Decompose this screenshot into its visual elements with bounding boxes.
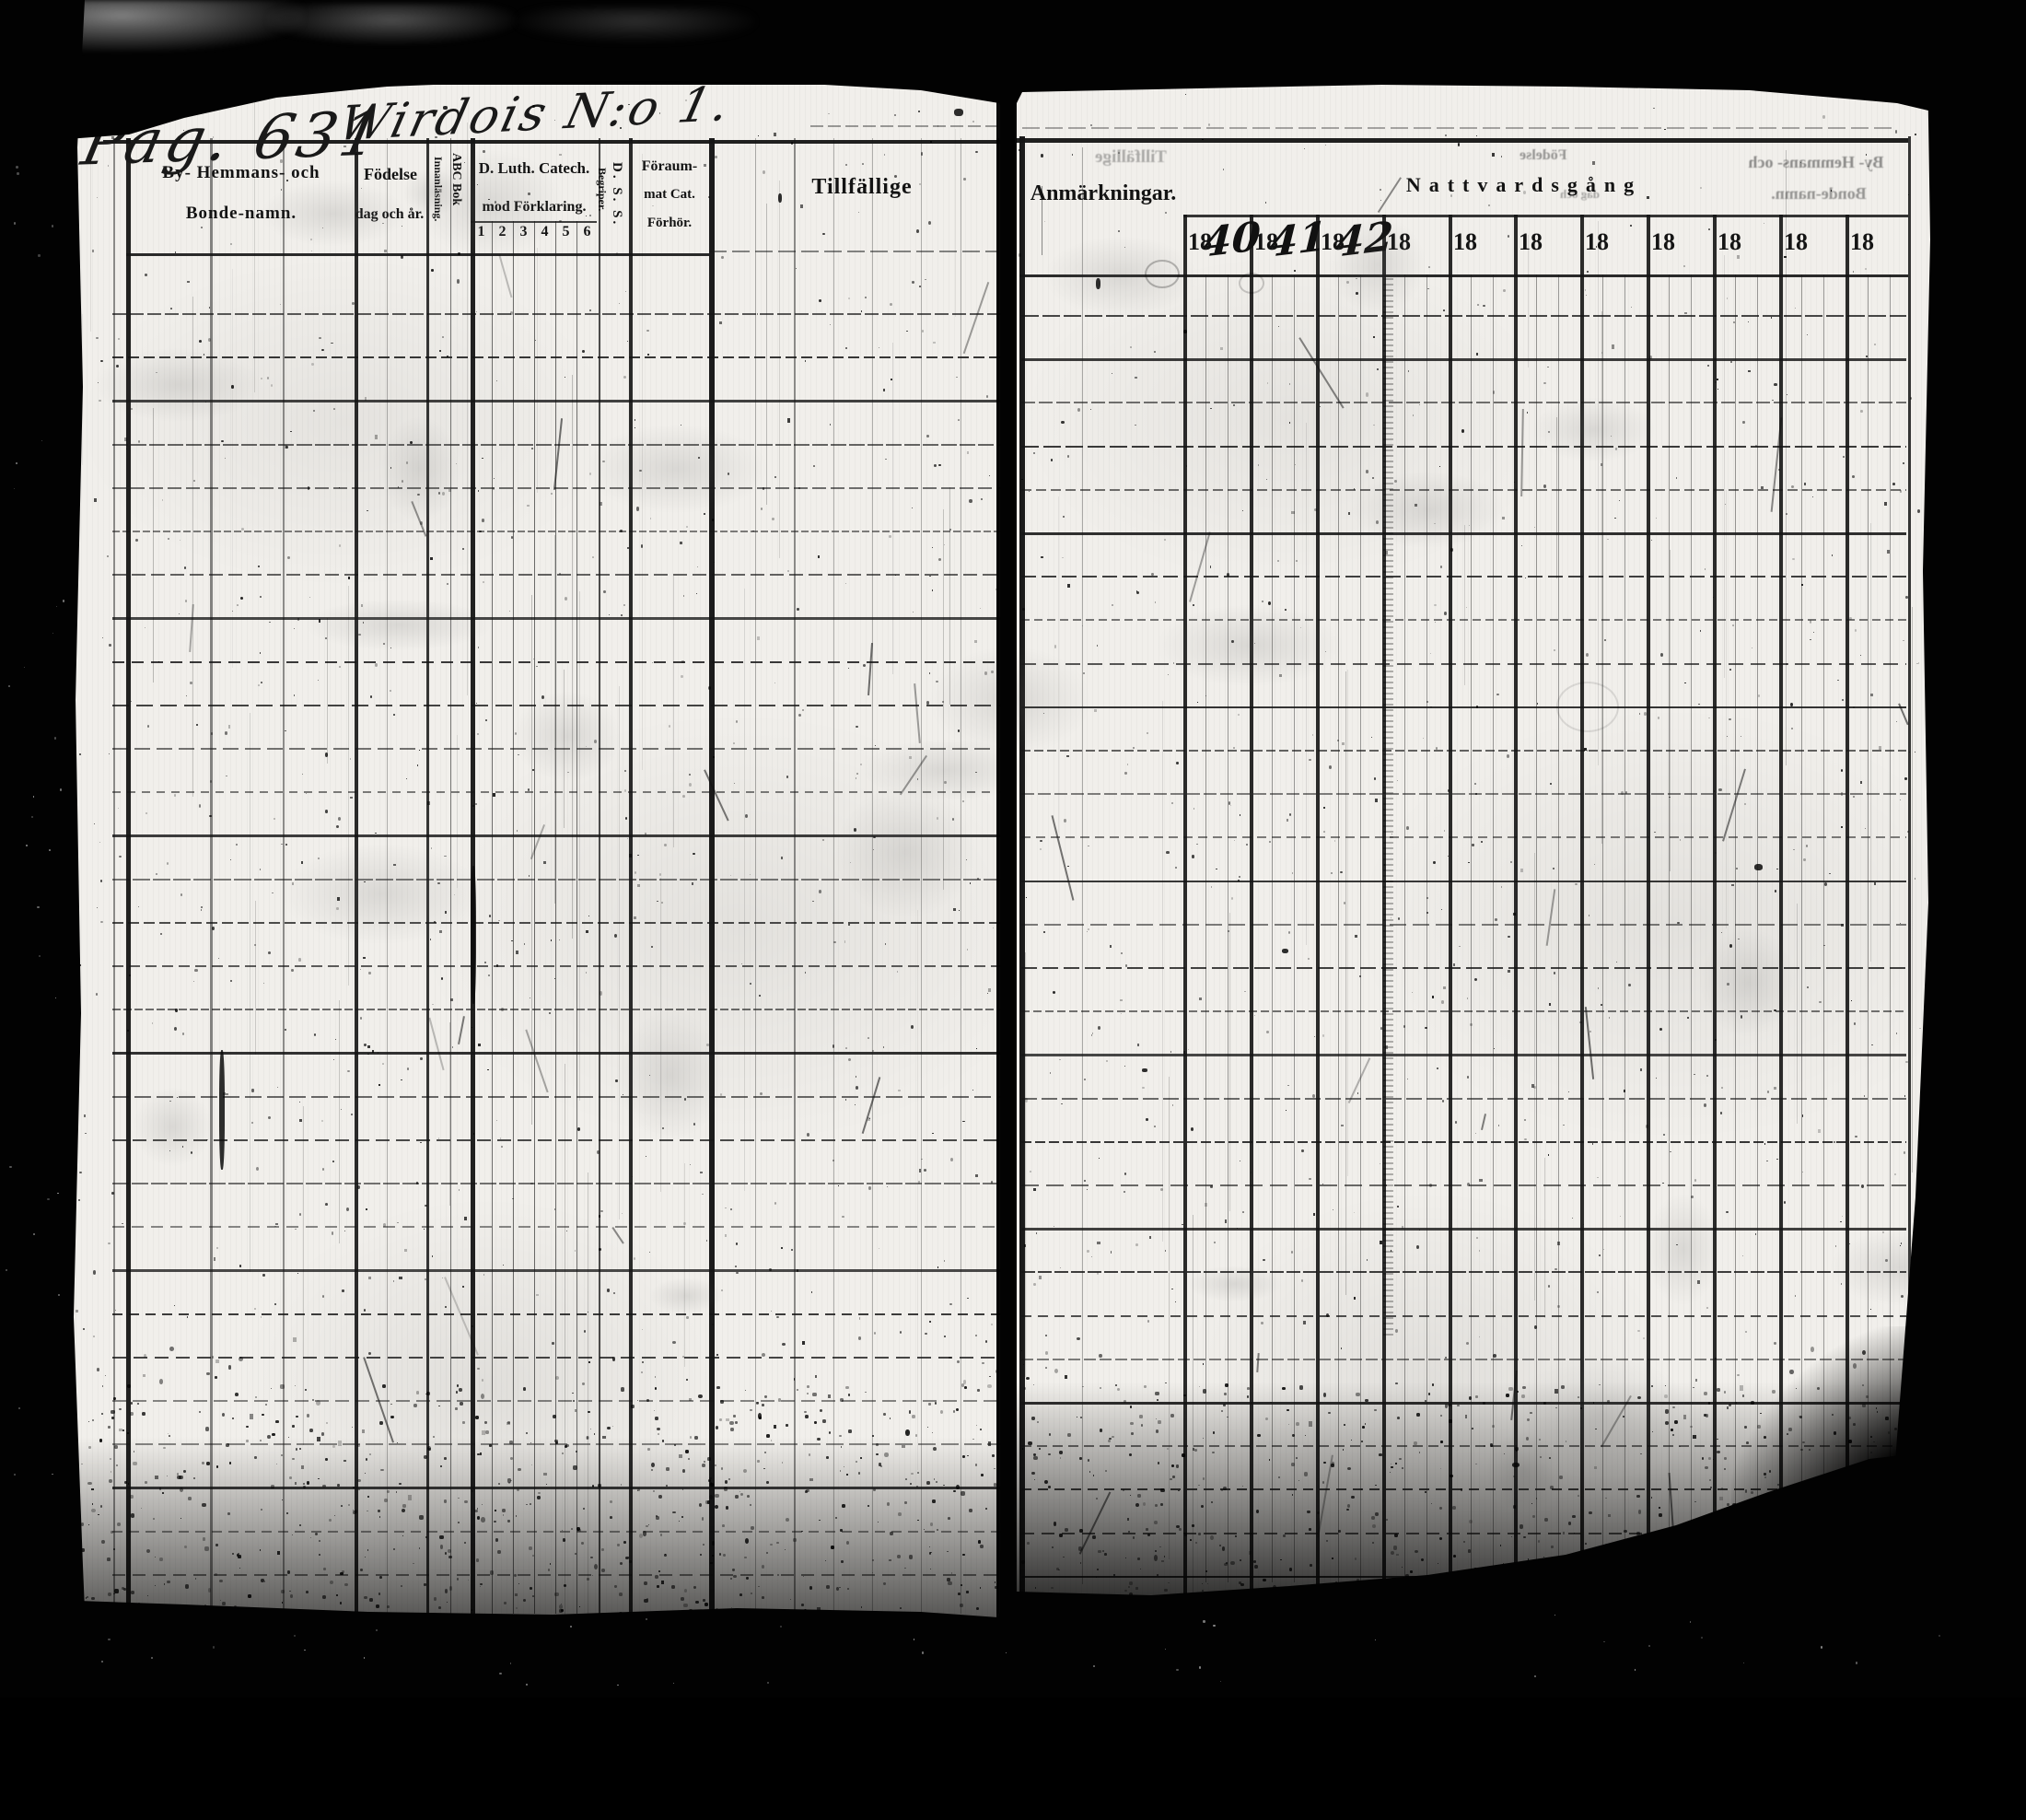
microfilm-frame: By- Hemmans- och Bonde-namn. Födelse dag… <box>0 0 2026 1697</box>
film-dust-layer <box>0 0 2026 1697</box>
